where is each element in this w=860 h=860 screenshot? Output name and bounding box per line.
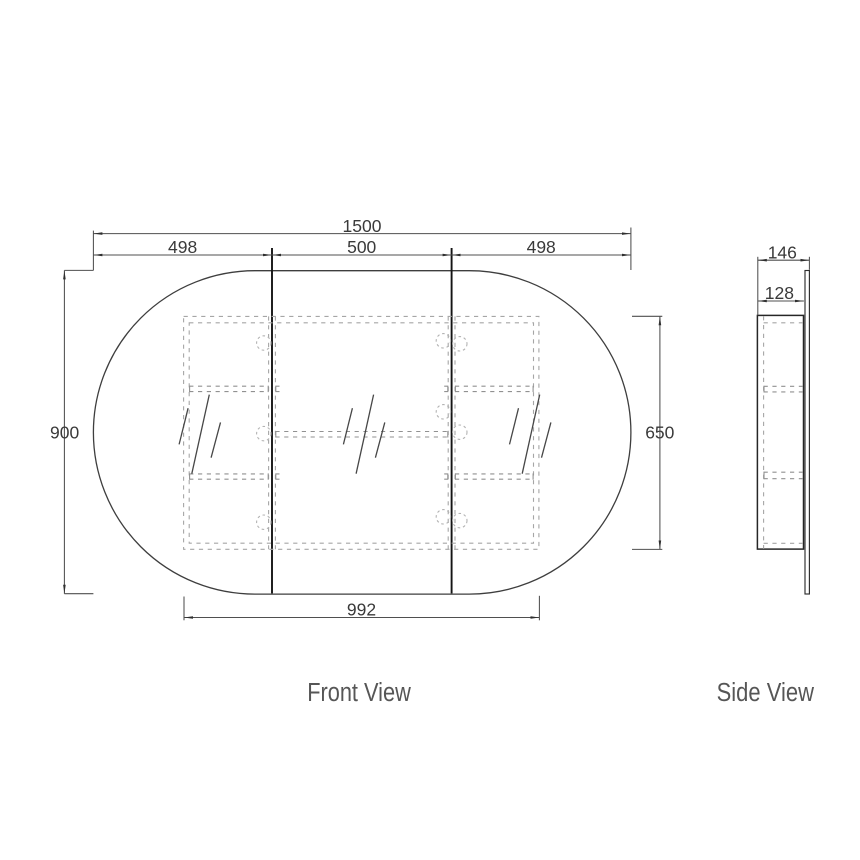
svg-text:992: 992 <box>347 600 376 620</box>
svg-text:128: 128 <box>765 283 794 303</box>
svg-text:650: 650 <box>645 422 674 442</box>
svg-text:Front View: Front View <box>307 679 411 707</box>
svg-text:146: 146 <box>768 242 797 262</box>
svg-text:Side View: Side View <box>717 679 815 707</box>
svg-text:500: 500 <box>347 237 376 257</box>
svg-text:498: 498 <box>527 237 556 257</box>
svg-text:498: 498 <box>168 237 197 257</box>
svg-text:1500: 1500 <box>343 216 382 236</box>
svg-text:900: 900 <box>50 422 79 442</box>
